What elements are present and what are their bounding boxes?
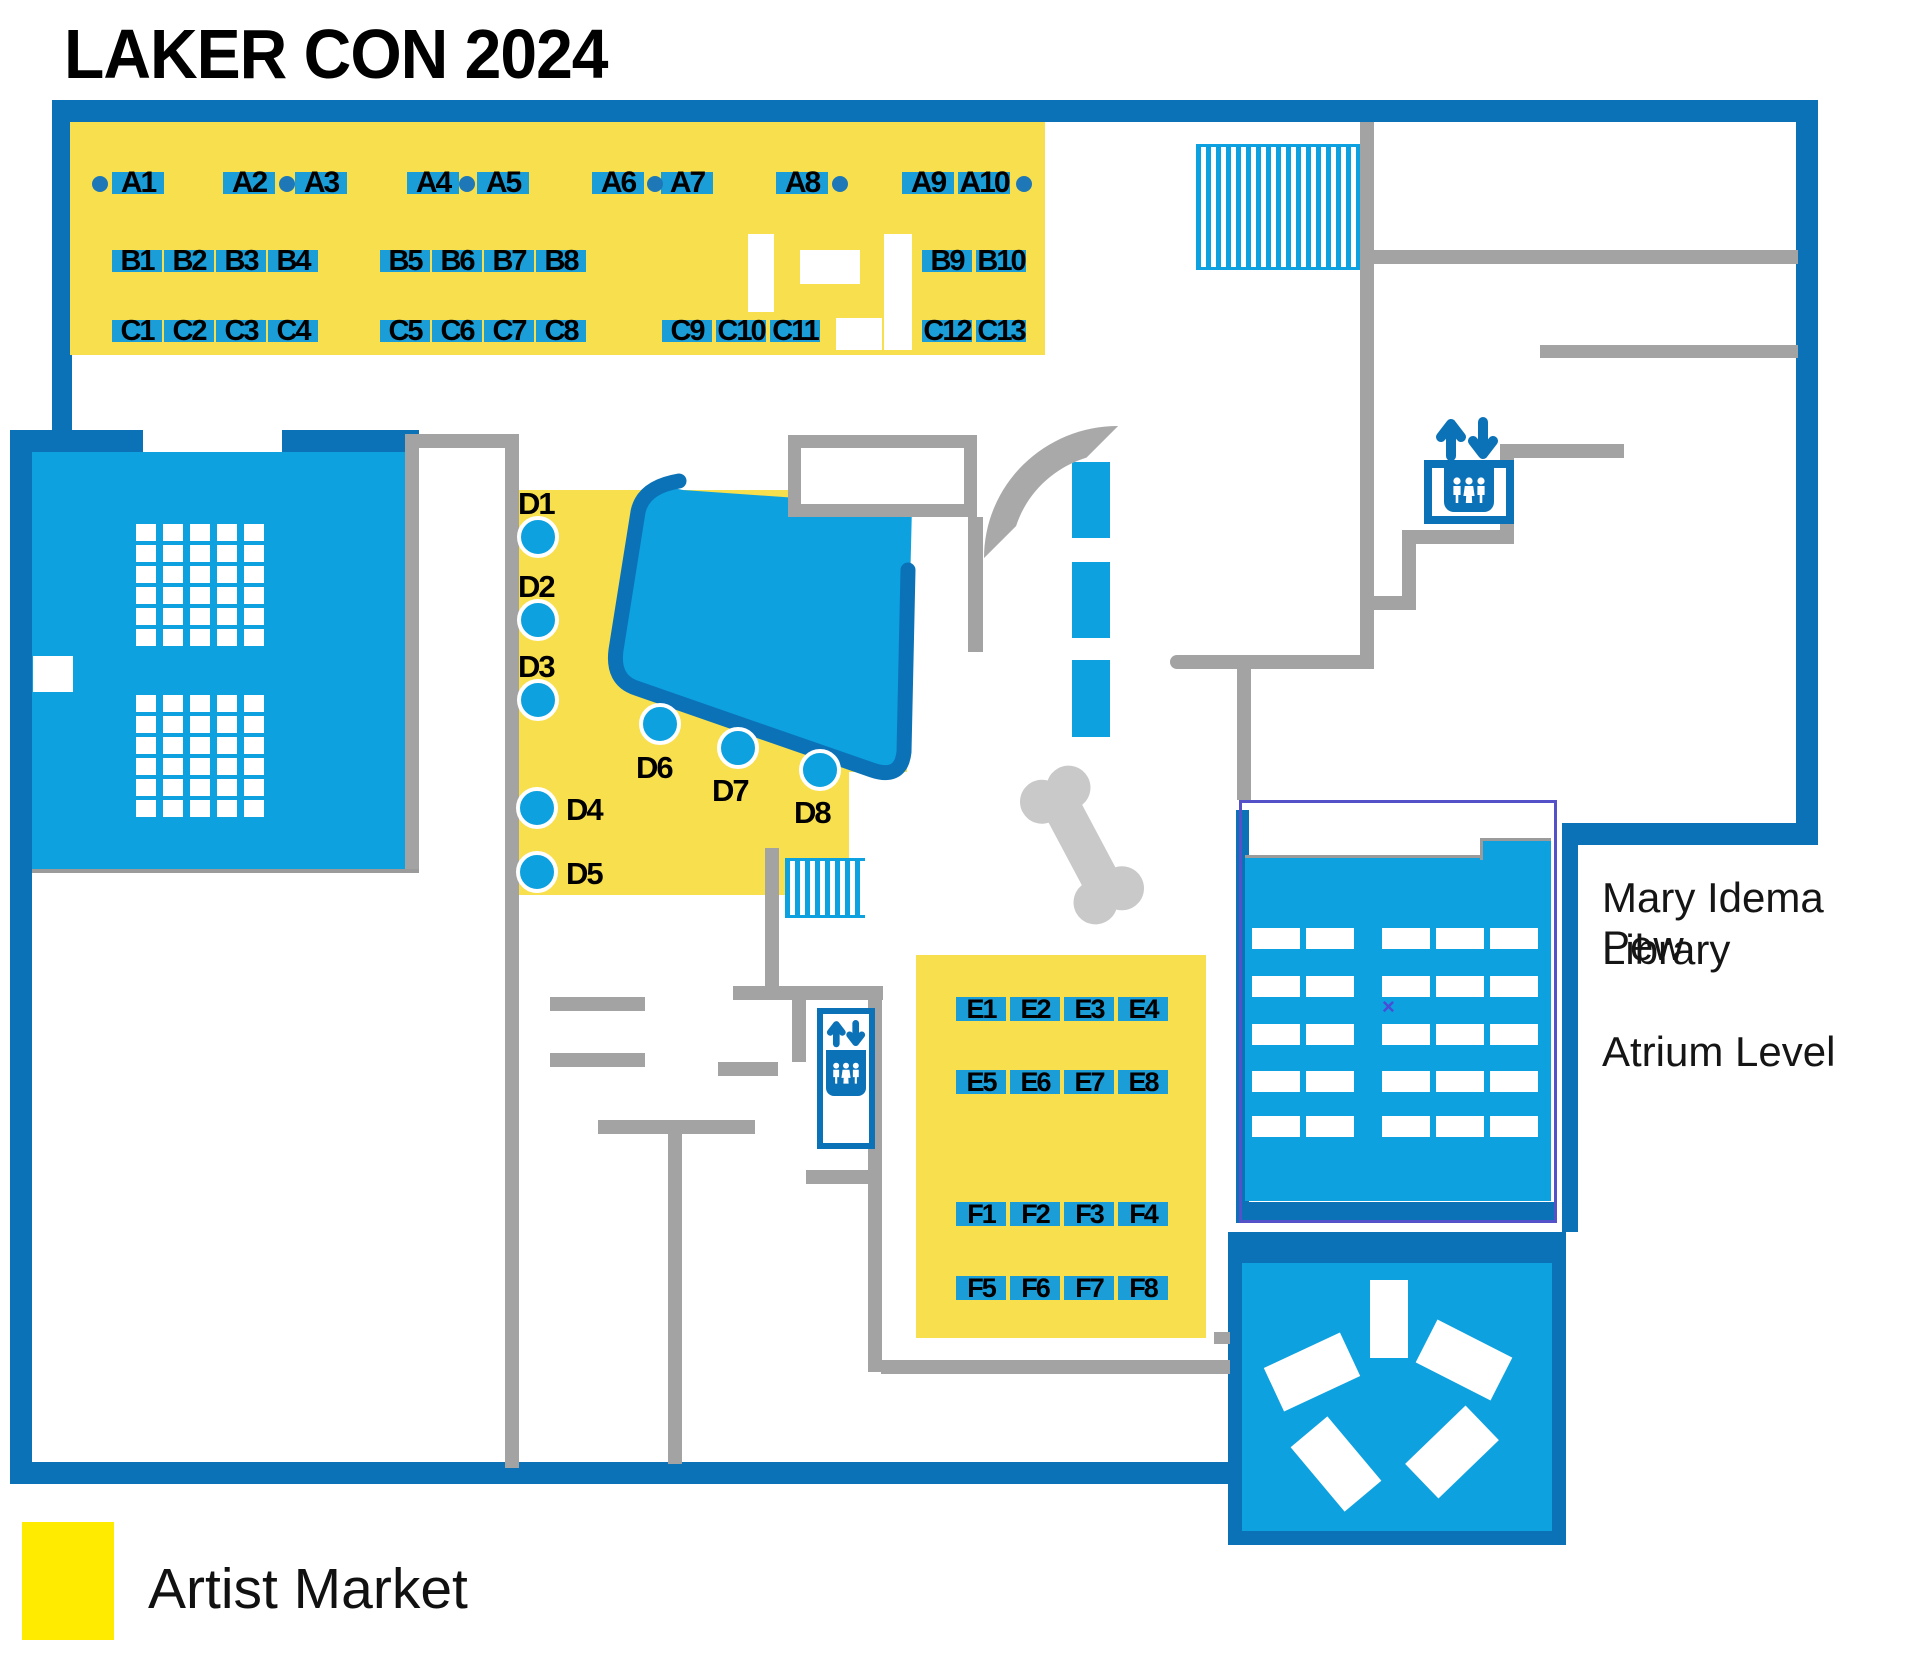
people-icon xyxy=(1444,468,1494,512)
seat-square xyxy=(244,695,264,712)
seat-square xyxy=(190,587,210,604)
seat-square xyxy=(217,524,237,541)
booth-d1 xyxy=(517,516,559,558)
library-right-wall xyxy=(1562,845,1578,1232)
booth-label-d5: D5 xyxy=(566,856,636,888)
booth-c1: C1 xyxy=(112,320,162,342)
wall-segment xyxy=(881,1360,1230,1374)
booth-c6: C6 xyxy=(432,320,482,342)
room-bottom-edge xyxy=(32,869,419,873)
seat-square xyxy=(163,524,183,541)
seat-square xyxy=(136,716,156,733)
map-border-left-lower xyxy=(10,430,32,1484)
seat-square xyxy=(217,587,237,604)
seat-square xyxy=(136,758,156,775)
booth-label-d6: D6 xyxy=(636,750,706,782)
wall-segment xyxy=(505,434,519,1468)
door-gap xyxy=(33,656,73,692)
wall-segment xyxy=(550,997,645,1011)
seat-square xyxy=(163,737,183,754)
study-room-table xyxy=(1370,1280,1408,1358)
booth-label-d2: D2 xyxy=(518,569,588,601)
wall-segment xyxy=(405,434,518,448)
booth-d7 xyxy=(717,727,759,769)
bone-sculpture xyxy=(1012,758,1152,932)
wall-segment xyxy=(968,517,983,652)
map-border-left-upper xyxy=(52,100,72,452)
wall-segment xyxy=(405,434,419,872)
seat-square xyxy=(163,608,183,625)
seat-square xyxy=(244,566,264,583)
wall-segment xyxy=(1237,669,1251,800)
seat-square xyxy=(244,737,264,754)
booth-e2: E2 xyxy=(1010,997,1060,1021)
seat-square xyxy=(217,758,237,775)
seat-square xyxy=(217,629,237,646)
seat-square xyxy=(136,800,156,817)
pillar xyxy=(1072,660,1110,737)
seat-square xyxy=(136,524,156,541)
booth-label-d4: D4 xyxy=(566,792,636,824)
seat-square xyxy=(136,779,156,796)
seat-square xyxy=(190,629,210,646)
booth-c3: C3 xyxy=(216,320,266,342)
booth-e7: E7 xyxy=(1064,1070,1114,1094)
booth-d6 xyxy=(639,703,681,745)
seat-square xyxy=(136,608,156,625)
people-icon xyxy=(826,1050,866,1096)
up-down-arrows-icon xyxy=(1434,416,1500,460)
seat-square xyxy=(136,566,156,583)
seat-square xyxy=(190,566,210,583)
map-border-top xyxy=(52,100,1818,122)
wall-segment xyxy=(1540,345,1798,358)
booth-a2: A2 xyxy=(223,172,275,194)
booth-c8: C8 xyxy=(536,320,586,342)
booth-divider-dot xyxy=(1016,176,1032,192)
obstacle xyxy=(800,250,860,284)
seat-square xyxy=(244,758,264,775)
wall-segment xyxy=(668,1134,682,1464)
map-border-right xyxy=(1796,100,1818,845)
map-border-bottom xyxy=(10,1462,1232,1484)
seat-square xyxy=(217,737,237,754)
page-title: LAKER CON 2024 xyxy=(64,14,608,94)
seat-square xyxy=(190,524,210,541)
booth-a7: A7 xyxy=(661,172,713,194)
floor-plan-map: LAKER CON 2024 A1A2A3A4A5A6A7A8A9A10B1B2… xyxy=(0,0,1912,1658)
seat-square xyxy=(244,716,264,733)
seat-square xyxy=(244,800,264,817)
booth-f4: F4 xyxy=(1118,1202,1168,1226)
seat-square xyxy=(190,800,210,817)
booth-b8: B8 xyxy=(536,250,586,272)
legend-label-artist-market: Artist Market xyxy=(148,1556,468,1622)
seat-square xyxy=(190,695,210,712)
booth-f6: F6 xyxy=(1010,1276,1060,1300)
map-x-marker: × xyxy=(1382,994,1395,1020)
booth-label-d1: D1 xyxy=(518,486,588,518)
stairs-upper xyxy=(1196,144,1360,270)
booth-b2: B2 xyxy=(164,250,214,272)
service-desk-room xyxy=(788,435,977,517)
booth-e1: E1 xyxy=(956,997,1006,1021)
seat-square xyxy=(190,758,210,775)
booth-divider-dot xyxy=(459,176,475,192)
booth-e8: E8 xyxy=(1118,1070,1168,1094)
booth-b9: B9 xyxy=(922,250,972,272)
booth-d2 xyxy=(517,599,559,641)
wall-segment xyxy=(1214,1332,1230,1344)
booth-divider-dot xyxy=(92,176,108,192)
obstacle xyxy=(884,234,912,350)
booth-divider-dot xyxy=(279,176,295,192)
stairs-lower xyxy=(785,858,865,918)
seat-square xyxy=(136,587,156,604)
pillar xyxy=(1072,562,1110,638)
wall-segment xyxy=(1170,655,1374,669)
library-level-label: Atrium Level xyxy=(1602,1028,1835,1076)
booth-label-d7: D7 xyxy=(712,773,782,805)
seat-square xyxy=(244,545,264,562)
seat-square xyxy=(217,695,237,712)
seat-square xyxy=(163,695,183,712)
elevator-car-box xyxy=(1424,460,1514,524)
seat-square xyxy=(190,545,210,562)
wall-segment xyxy=(598,1120,755,1134)
seat-square xyxy=(244,587,264,604)
booth-b7: B7 xyxy=(484,250,534,272)
seat-square xyxy=(136,629,156,646)
seat-square xyxy=(136,695,156,712)
obstacle xyxy=(836,318,882,350)
booth-a5: A5 xyxy=(477,172,529,194)
seat-square xyxy=(190,737,210,754)
booth-a6: A6 xyxy=(592,172,644,194)
booth-a4: A4 xyxy=(407,172,459,194)
seat-square xyxy=(163,566,183,583)
seat-square xyxy=(244,608,264,625)
booth-label-d3: D3 xyxy=(518,649,588,681)
booth-divider-dot xyxy=(832,176,848,192)
booth-c7: C7 xyxy=(484,320,534,342)
booth-c10: C10 xyxy=(716,320,766,342)
library-name-line2: Library xyxy=(1602,926,1730,974)
seat-square xyxy=(244,629,264,646)
seat-square xyxy=(136,545,156,562)
booth-f2: F2 xyxy=(1010,1202,1060,1226)
booth-a8: A8 xyxy=(776,172,828,194)
booth-divider-dot xyxy=(647,176,663,192)
seat-square xyxy=(163,758,183,775)
booth-b10: B10 xyxy=(976,250,1026,272)
seat-square xyxy=(163,716,183,733)
wall-segment xyxy=(718,1062,778,1076)
booth-f7: F7 xyxy=(1064,1276,1114,1300)
wall-segment xyxy=(806,1170,882,1184)
booth-b3: B3 xyxy=(216,250,266,272)
seat-square xyxy=(163,545,183,562)
booth-c11: C11 xyxy=(770,320,820,342)
wall-segment xyxy=(1512,444,1624,458)
booth-b1: B1 xyxy=(112,250,162,272)
seat-square xyxy=(217,779,237,796)
booth-b6: B6 xyxy=(432,250,482,272)
up-down-arrows-icon xyxy=(826,1018,866,1048)
wall-segment xyxy=(733,986,883,1000)
booth-e4: E4 xyxy=(1118,997,1168,1021)
seat-square xyxy=(217,800,237,817)
seat-square xyxy=(163,629,183,646)
booth-e5: E5 xyxy=(956,1070,1006,1094)
booth-c5: C5 xyxy=(380,320,430,342)
wall-segment xyxy=(765,848,779,1000)
legend-swatch-artist-market xyxy=(22,1522,114,1640)
seat-square xyxy=(244,779,264,796)
seat-square xyxy=(136,737,156,754)
booth-c12: C12 xyxy=(922,320,972,342)
booth-f3: F3 xyxy=(1064,1202,1114,1226)
seat-square xyxy=(163,587,183,604)
upper-right-room-bottom-wall xyxy=(1562,823,1818,845)
booth-a3: A3 xyxy=(295,172,347,194)
seat-square xyxy=(217,545,237,562)
seat-square xyxy=(217,716,237,733)
booth-c9: C9 xyxy=(662,320,712,342)
seat-square xyxy=(190,608,210,625)
booth-f1: F1 xyxy=(956,1202,1006,1226)
seat-square xyxy=(190,716,210,733)
booth-d4 xyxy=(516,787,558,829)
seat-square xyxy=(163,800,183,817)
elevator-icon xyxy=(1424,416,1514,524)
wall-segment xyxy=(1360,250,1798,264)
booth-b5: B5 xyxy=(380,250,430,272)
seat-square xyxy=(217,566,237,583)
seat-square xyxy=(244,524,264,541)
obstacle xyxy=(748,234,774,312)
booth-d8 xyxy=(799,749,841,791)
conference-room-top-wall-right xyxy=(282,430,419,452)
seat-square xyxy=(190,779,210,796)
wall-segment xyxy=(792,1000,806,1062)
booth-c2: C2 xyxy=(164,320,214,342)
booth-d5 xyxy=(516,851,558,893)
booth-f5: F5 xyxy=(956,1276,1006,1300)
seat-square xyxy=(163,779,183,796)
library-atrium-outline xyxy=(1239,800,1557,1223)
booth-d3 xyxy=(517,679,559,721)
wall-segment xyxy=(1360,596,1416,610)
wall-segment xyxy=(550,1053,645,1067)
booth-c13: C13 xyxy=(976,320,1026,342)
booth-b4: B4 xyxy=(268,250,318,272)
booth-c4: C4 xyxy=(268,320,318,342)
booth-a9: A9 xyxy=(902,172,954,194)
elevator-icon xyxy=(817,1008,875,1149)
door-swing-arc xyxy=(984,426,1118,558)
booth-e3: E3 xyxy=(1064,997,1114,1021)
booth-a10: A10 xyxy=(958,172,1010,194)
wall-segment xyxy=(1360,122,1374,668)
seat-square xyxy=(217,608,237,625)
booth-f8: F8 xyxy=(1118,1276,1168,1300)
booth-label-d8: D8 xyxy=(794,795,864,827)
booth-a1: A1 xyxy=(112,172,164,194)
booth-e6: E6 xyxy=(1010,1070,1060,1094)
wall-segment xyxy=(1402,530,1514,544)
